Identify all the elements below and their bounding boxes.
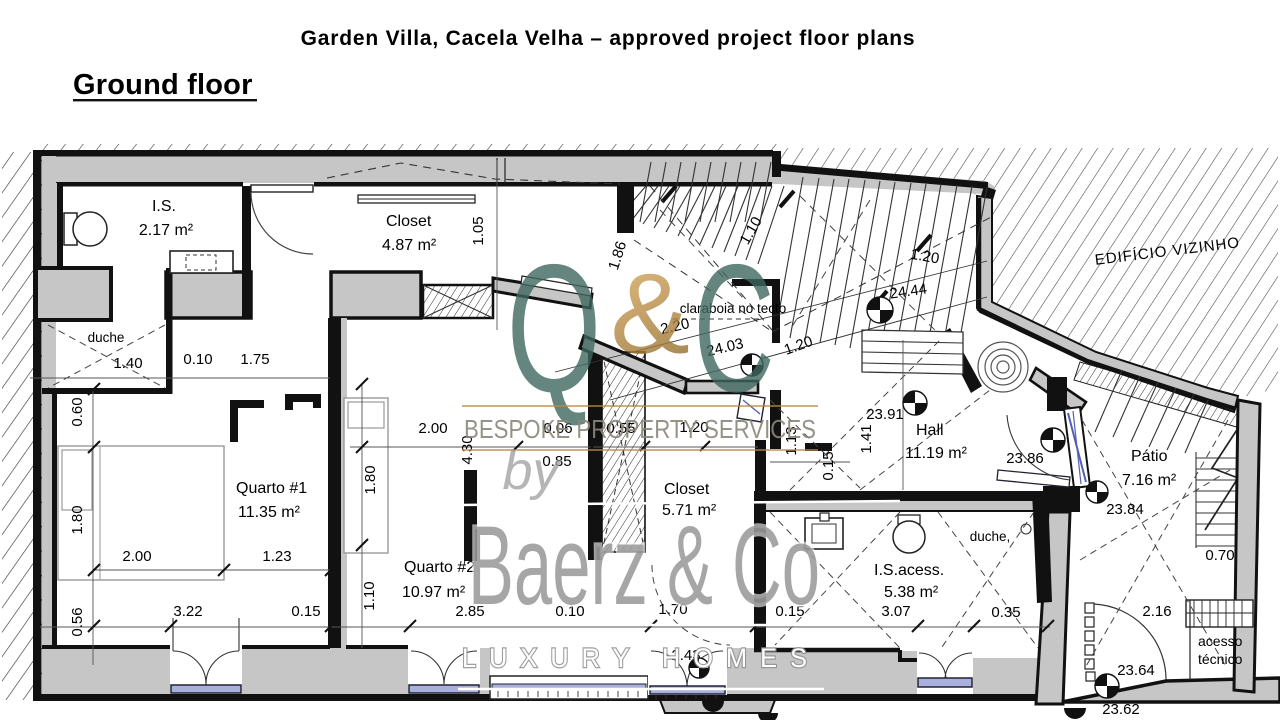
svg-text:0.15: 0.15 <box>291 603 320 620</box>
svg-text:0.35: 0.35 <box>991 604 1020 621</box>
svg-text:1.75: 1.75 <box>240 351 269 368</box>
svg-text:23.62: 23.62 <box>1102 701 1140 718</box>
svg-text:2.16: 2.16 <box>1142 603 1171 620</box>
svg-text:duche,: duche, <box>970 529 1011 544</box>
svg-text:0.60: 0.60 <box>69 397 86 426</box>
svg-text:Closet: Closet <box>664 481 710 498</box>
svg-text:duche: duche <box>88 330 125 345</box>
svg-text:Ground floor: Ground floor <box>73 69 253 101</box>
svg-text:Garden Villa, Cacela Velha – a: Garden Villa, Cacela Velha – approved pr… <box>301 27 916 50</box>
svg-text:10.97 m²: 10.97 m² <box>402 584 466 601</box>
svg-text:Q: Q <box>507 227 602 430</box>
svg-text:23.86: 23.86 <box>1006 450 1044 467</box>
svg-text:Pátio: Pátio <box>1131 448 1168 465</box>
svg-text:1.05: 1.05 <box>470 216 487 245</box>
svg-text:BESPOKE PROPERTY SERVICES: BESPOKE PROPERTY SERVICES <box>464 414 816 444</box>
svg-text:0.10: 0.10 <box>183 351 212 368</box>
svg-text:3.07: 3.07 <box>881 603 910 620</box>
svg-text:1.80: 1.80 <box>362 465 379 494</box>
svg-text:Closet: Closet <box>386 213 432 230</box>
svg-text:0.56: 0.56 <box>69 607 86 636</box>
svg-text:23.84: 23.84 <box>1106 501 1144 518</box>
svg-text:11.19 m²: 11.19 m² <box>905 445 968 462</box>
svg-text:5.38 m²: 5.38 m² <box>884 584 939 601</box>
svg-text:2.00: 2.00 <box>122 548 151 565</box>
svg-text:C: C <box>693 228 774 431</box>
svg-text:by: by <box>502 441 562 501</box>
svg-text:Hall: Hall <box>916 422 944 439</box>
svg-text:1.40: 1.40 <box>113 355 142 372</box>
svg-text:7.16 m²: 7.16 m² <box>1122 472 1177 489</box>
svg-text:Quarto #1: Quarto #1 <box>236 480 307 497</box>
svg-text:LUXURY HOMES: LUXURY HOMES <box>462 643 820 673</box>
svg-text:3.22: 3.22 <box>173 603 202 620</box>
svg-text:1.41: 1.41 <box>858 424 875 453</box>
svg-text:I.S.acess.: I.S.acess. <box>874 562 944 579</box>
svg-text:1.10: 1.10 <box>361 581 378 610</box>
svg-text:23.64: 23.64 <box>1117 662 1155 679</box>
svg-text:I.S.: I.S. <box>152 198 176 215</box>
svg-text:4.87 m²: 4.87 m² <box>382 237 437 254</box>
svg-text:2.17 m²: 2.17 m² <box>139 222 194 239</box>
svg-text:2.00: 2.00 <box>418 420 447 437</box>
svg-text:acesso: acesso <box>1198 633 1243 649</box>
svg-text:0.70: 0.70 <box>1205 547 1234 564</box>
svg-text:1.80: 1.80 <box>69 505 86 534</box>
svg-text:0.15: 0.15 <box>820 451 837 480</box>
svg-text:&: & <box>610 250 690 378</box>
svg-text:23.91: 23.91 <box>866 406 904 423</box>
svg-text:Quarto #2: Quarto #2 <box>404 559 475 576</box>
svg-text:Baerz & Co: Baerz & Co <box>468 503 820 628</box>
svg-text:11.35 m²: 11.35 m² <box>238 504 301 521</box>
svg-text:1.23: 1.23 <box>262 548 291 565</box>
svg-text:técnico: técnico <box>1198 651 1243 667</box>
